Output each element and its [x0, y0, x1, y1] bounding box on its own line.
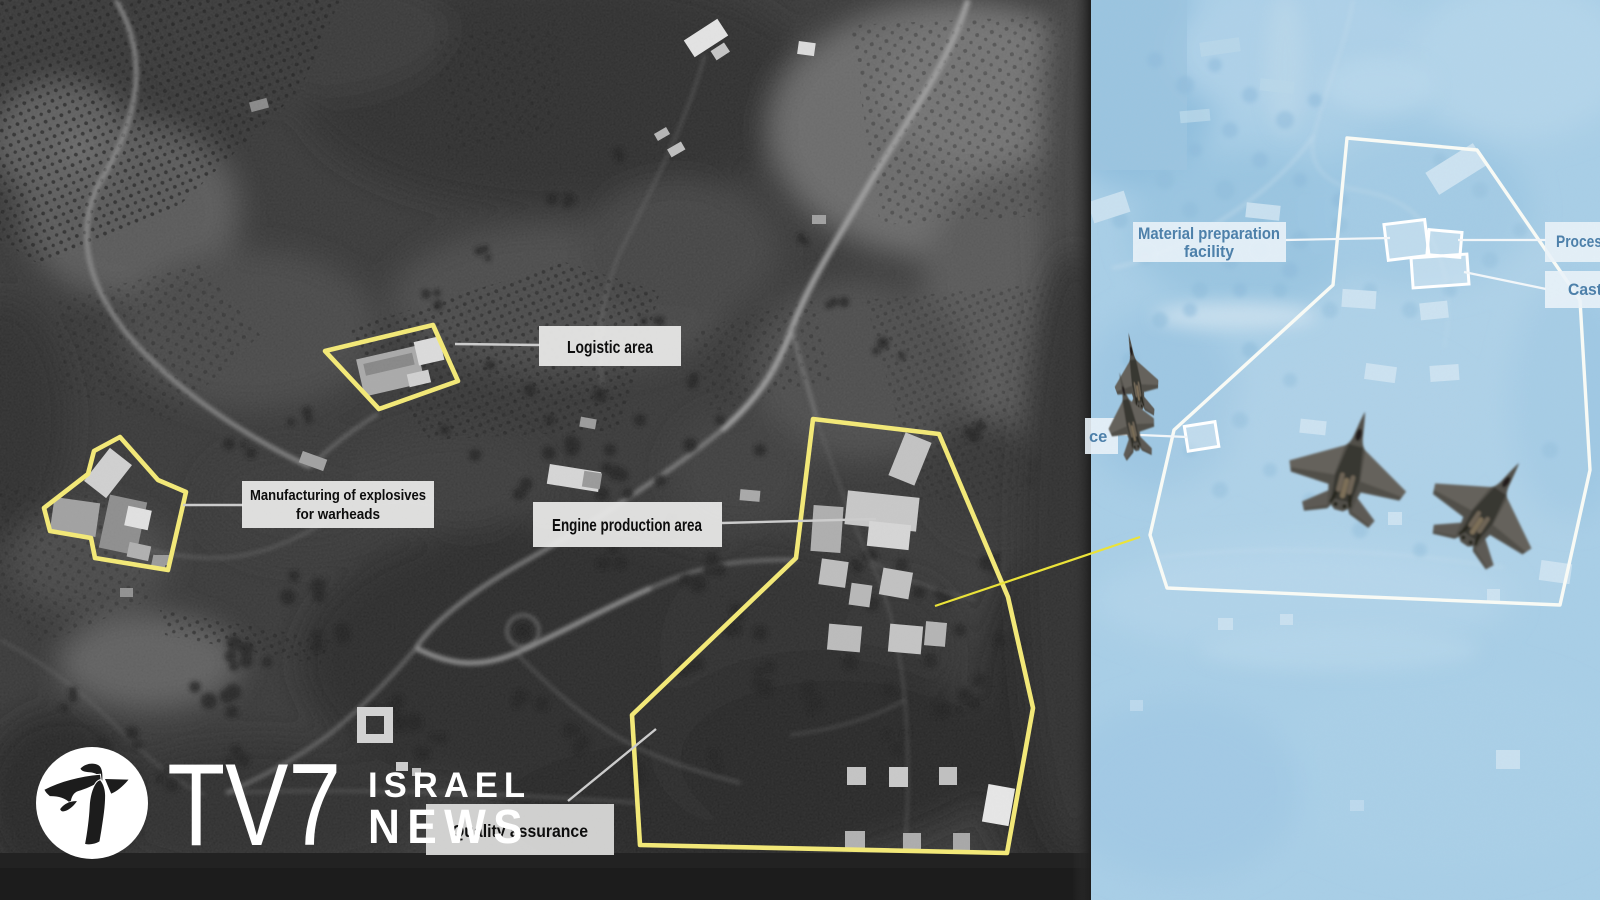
svg-text:ISRAEL: ISRAEL — [368, 766, 531, 805]
svg-text:Logistic area: Logistic area — [567, 337, 653, 357]
svg-text:Engine production area: Engine production area — [552, 515, 702, 535]
svg-text:NEWS: NEWS — [368, 801, 530, 854]
svg-text:Material preparation: Material preparation — [1138, 225, 1280, 243]
svg-text:for warheads: for warheads — [296, 506, 380, 523]
svg-text:Proces: Proces — [1556, 233, 1600, 251]
svg-text:ce: ce — [1089, 428, 1107, 446]
svg-text:Manufacturing of explosives: Manufacturing of explosives — [250, 487, 426, 504]
svg-text:Cast: Cast — [1568, 281, 1600, 299]
svg-text:facility: facility — [1184, 243, 1235, 261]
svg-text:TV7: TV7 — [167, 739, 341, 870]
